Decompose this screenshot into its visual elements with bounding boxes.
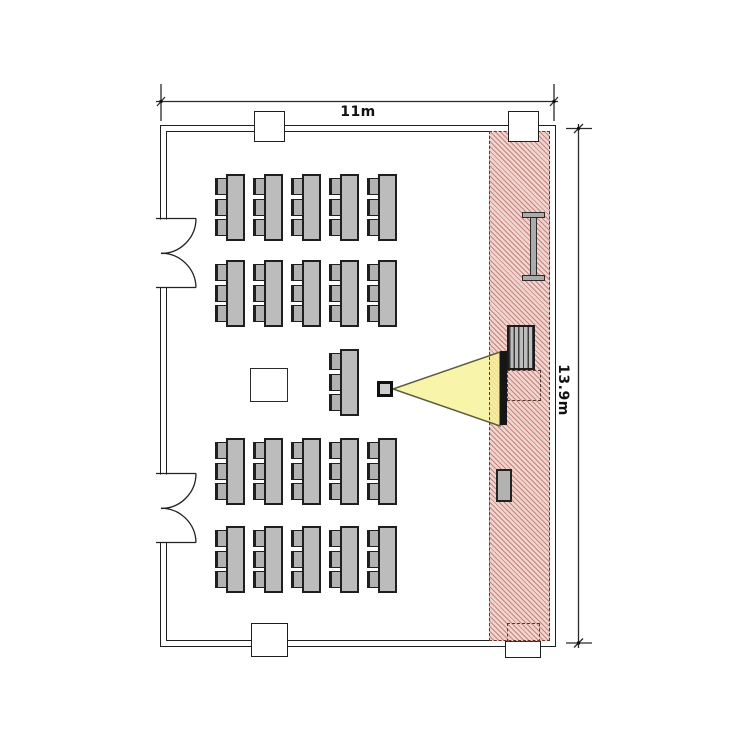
wall-opening-bottom-right-notch [507,623,540,642]
classroom-floor-plan: 11m 13.9m [0,0,750,750]
wall-opening-top-left [254,111,285,142]
cabinet [496,469,512,502]
wall-rail-stem [530,217,537,276]
width-dimension-label: 11m [330,104,386,120]
wall-opening-top-right [508,111,539,142]
wall-opening-bottom-right [505,641,541,658]
wall-rail-bottom [522,275,545,281]
projector-beam-icon [393,352,500,426]
wall-opening-bottom-left [251,623,288,657]
projector-icon [377,381,393,397]
teacher-desk-zone [507,370,541,401]
teacher-desk [507,325,535,370]
height-dimension-label: 13.9m [555,360,571,420]
projection-screen [500,351,507,425]
